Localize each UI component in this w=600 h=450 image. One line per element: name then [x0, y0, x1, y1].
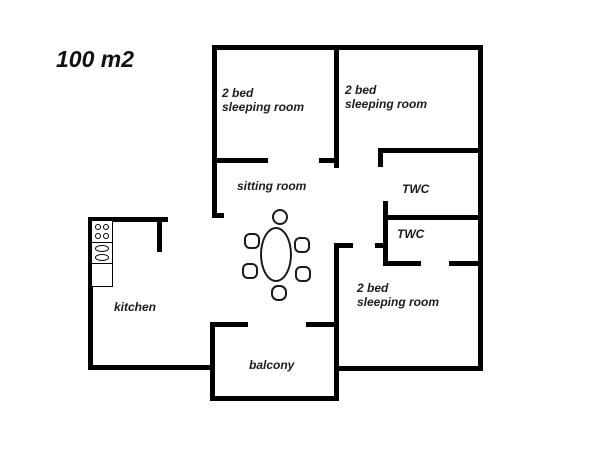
wall-balcony-top-right	[306, 322, 334, 327]
area-label: 100 m2	[56, 46, 134, 73]
wall-left-upper-foot	[212, 213, 224, 218]
floor-plan: 100 m2	[0, 0, 600, 450]
wall-kitchen-bottom	[93, 365, 215, 370]
counter-icon	[92, 264, 112, 286]
wall-twc-lower-left	[383, 220, 388, 266]
wall-balcony-left	[210, 322, 215, 401]
room-label-balcony: balcony	[249, 358, 294, 372]
chair-icon	[244, 233, 260, 249]
stove-burner-icon	[103, 224, 109, 230]
door-jamb-bedroom2	[378, 148, 383, 167]
room-label-twc-lower: TWC	[397, 227, 424, 241]
kitchen-counter-unit	[91, 220, 113, 287]
wall-twc-lower-bottom-left	[383, 261, 421, 266]
stove-burner-icon	[95, 233, 101, 239]
wall-bedroom3-bottom	[339, 366, 478, 371]
wall-bedroom1-bottom-right	[319, 158, 339, 163]
chair-icon	[272, 209, 288, 225]
room-label-bedroom-bottom-right: 2 bed sleeping room	[357, 281, 439, 309]
wall-twc-divider	[383, 215, 483, 220]
room-label-kitchen: kitchen	[114, 300, 156, 314]
room-label-bedroom-top-left: 2 bed sleeping room	[222, 86, 304, 114]
room-label-bedroom-top-right: 2 bed sleeping room	[345, 83, 427, 111]
chair-icon	[271, 285, 287, 301]
chair-icon	[295, 266, 311, 282]
wall-bedroom-divider	[334, 45, 339, 168]
chair-icon	[294, 237, 310, 253]
door-jamb-kitchen	[157, 222, 162, 252]
room-label-twc-upper: TWC	[402, 182, 429, 196]
chair-icon	[242, 263, 258, 279]
door-jamb-twc-lower-left	[375, 243, 383, 248]
stove-burner-icon	[95, 224, 101, 230]
wall-right	[478, 45, 483, 371]
room-label-sitting-room: sitting room	[237, 179, 306, 193]
sink-basin-icon	[95, 254, 109, 261]
wall-twc-lower-bottom-right	[449, 261, 483, 266]
wall-top	[212, 45, 483, 50]
wall-bedroom3-left	[334, 243, 339, 401]
wall-balcony-top-left	[215, 322, 248, 327]
stove-icon	[92, 221, 112, 243]
stove-burner-icon	[103, 233, 109, 239]
door-jamb-bedroom3	[339, 243, 353, 248]
sink-basin-icon	[95, 245, 109, 252]
sink-icon	[92, 243, 112, 264]
dining-table-icon	[260, 227, 292, 282]
wall-bedroom1-bottom-left	[217, 158, 268, 163]
wall-balcony-bottom	[215, 396, 334, 401]
wall-left-upper	[212, 45, 217, 218]
wall-twc-upper-top	[378, 148, 483, 153]
